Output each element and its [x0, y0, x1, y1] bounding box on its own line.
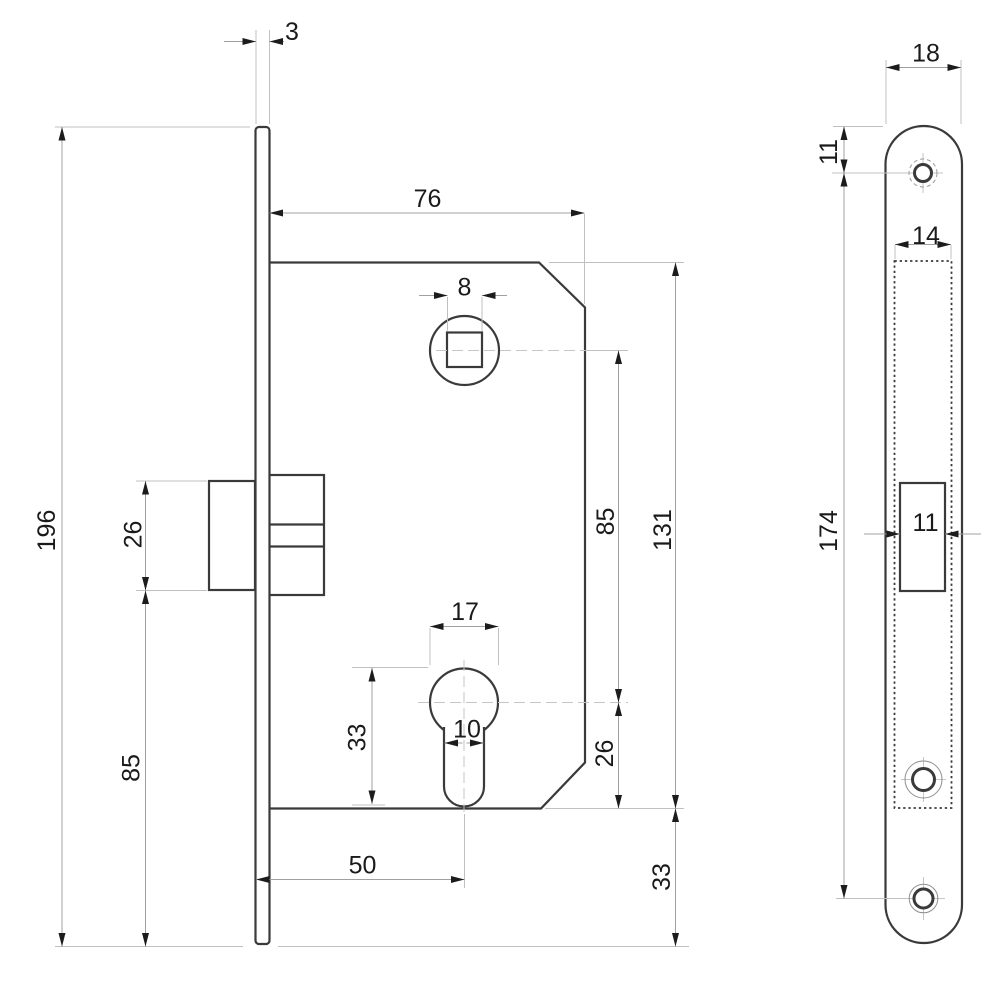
- svg-text:17: 17: [451, 598, 479, 626]
- svg-text:131: 131: [649, 509, 677, 551]
- svg-text:26: 26: [120, 521, 148, 549]
- svg-text:10: 10: [453, 716, 481, 744]
- svg-text:3: 3: [285, 18, 299, 46]
- svg-text:196: 196: [33, 510, 61, 552]
- svg-text:8: 8: [458, 274, 472, 302]
- svg-text:33: 33: [648, 863, 676, 891]
- svg-text:76: 76: [414, 185, 442, 213]
- svg-text:18: 18: [912, 40, 940, 68]
- svg-text:33: 33: [344, 724, 372, 752]
- svg-text:174: 174: [815, 510, 843, 552]
- svg-text:26: 26: [591, 740, 619, 768]
- svg-text:11: 11: [913, 509, 939, 537]
- svg-text:14: 14: [912, 222, 940, 250]
- svg-text:85: 85: [592, 508, 620, 536]
- svg-text:11: 11: [815, 139, 843, 165]
- svg-text:50: 50: [349, 852, 377, 880]
- svg-text:85: 85: [118, 754, 146, 782]
